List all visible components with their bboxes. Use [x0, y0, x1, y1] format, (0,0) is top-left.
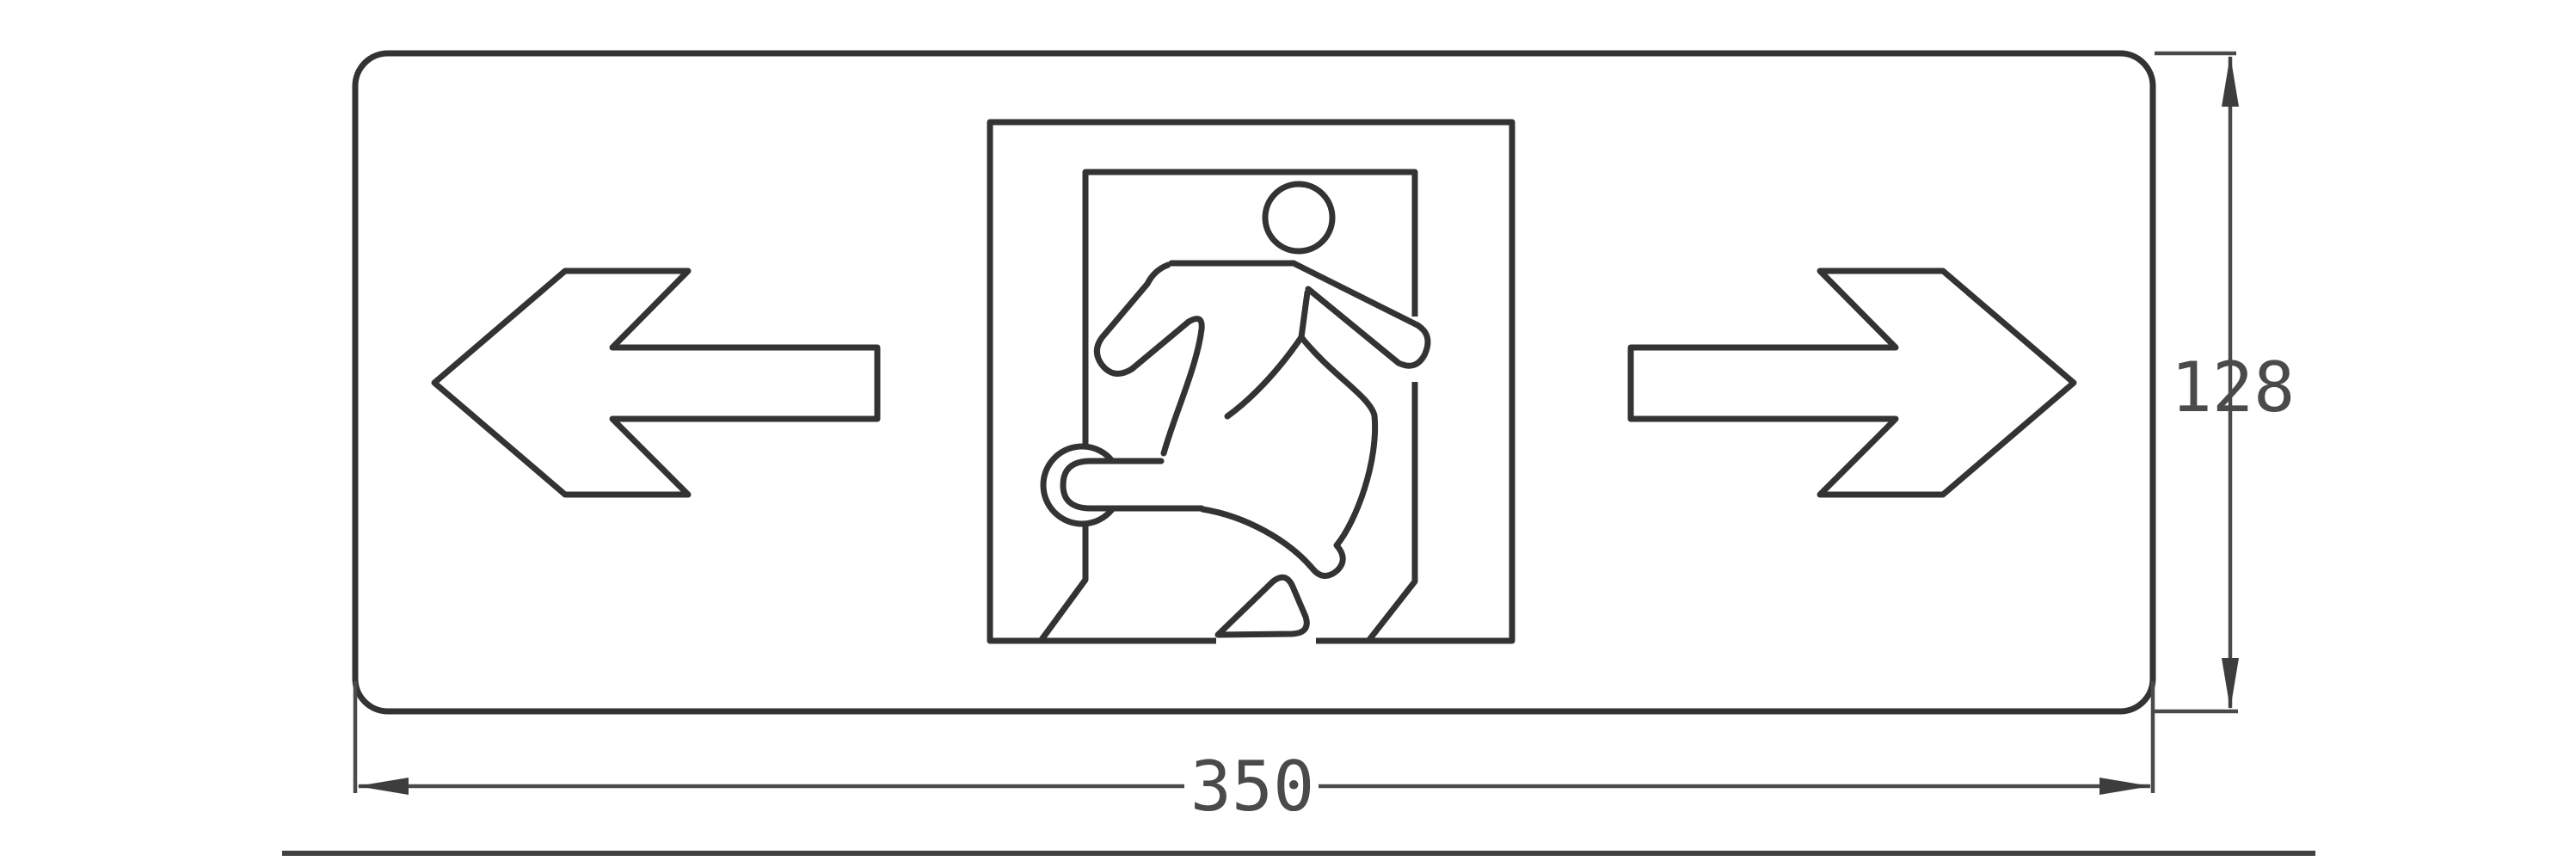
arrowhead-down-icon	[2222, 658, 2239, 710]
man-front-leg	[1202, 337, 1375, 576]
left-arrow-outline	[434, 271, 877, 495]
rear-foot-fill	[1061, 459, 1203, 510]
height-dimension-label: 128	[2171, 347, 2296, 427]
height-dimension: 128	[2155, 53, 2295, 711]
man-shoe	[1218, 577, 1306, 635]
baseline-rule	[282, 851, 2315, 856]
left-arrow-icon	[434, 271, 877, 495]
right-arrow-outline	[1631, 271, 2074, 495]
arrowhead-right-icon	[2100, 778, 2151, 795]
man-head	[1265, 184, 1332, 251]
exit-sign-dimension-drawing: 128 350	[0, 0, 2576, 861]
width-dimension-label: 350	[1190, 747, 1315, 827]
right-arrow-icon	[1631, 271, 2074, 495]
arrowhead-left-icon	[357, 778, 409, 795]
door-frame-outer	[990, 122, 1512, 641]
drawing-canvas: 128 350	[0, 0, 2576, 861]
width-dimension: 350	[355, 681, 2153, 827]
arrowhead-up-icon	[2222, 55, 2239, 107]
man-rear-arm-and-torso-left	[1097, 265, 1202, 453]
man-torso-right	[1227, 292, 1307, 416]
exit-running-man-icon	[990, 122, 1512, 641]
door-frame-inner-left	[1041, 524, 1085, 641]
